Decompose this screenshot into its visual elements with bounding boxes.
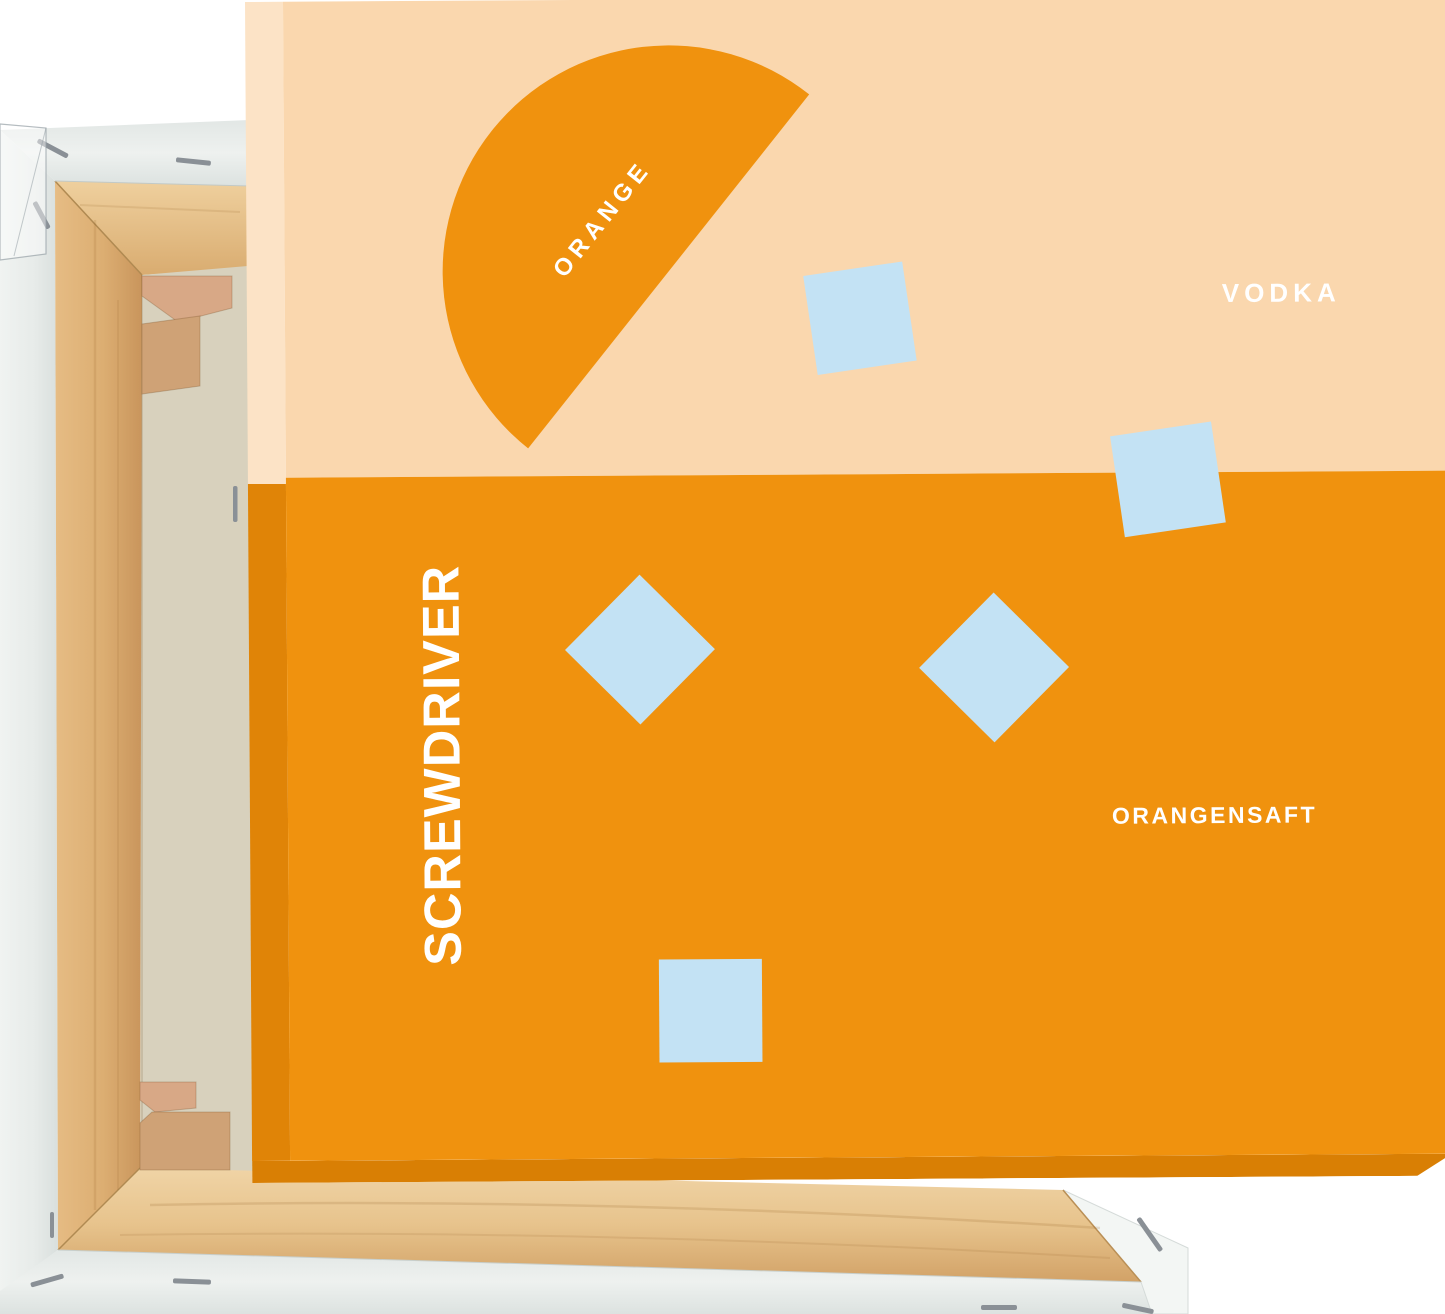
wrap-left-bar <box>0 130 58 1293</box>
canvas-print-front: ORANGE VODKA ORANGENSAFT SCREWDRIVER <box>245 0 1445 1183</box>
ice-cube-5 <box>659 959 763 1063</box>
ice-cube-2 <box>1110 422 1226 538</box>
vodka-label: VODKA <box>1222 277 1341 309</box>
canvas-raw-back <box>140 265 260 1180</box>
orangensaft-label: ORANGENSAFT <box>1112 801 1317 829</box>
corner-key-bottom-2 <box>140 1112 230 1170</box>
product-mockup-scene: ORANGE VODKA ORANGENSAFT SCREWDRIVER <box>0 0 1445 1314</box>
corner-protector <box>0 124 46 260</box>
corner-key-top-2 <box>142 316 200 394</box>
staple <box>233 486 238 522</box>
staple <box>981 1305 1017 1310</box>
wood-left-bar <box>55 181 142 1250</box>
ice-cube-1 <box>803 262 916 375</box>
screwdriver-title: SCREWDRIVER <box>419 566 465 966</box>
staple <box>50 1212 54 1238</box>
